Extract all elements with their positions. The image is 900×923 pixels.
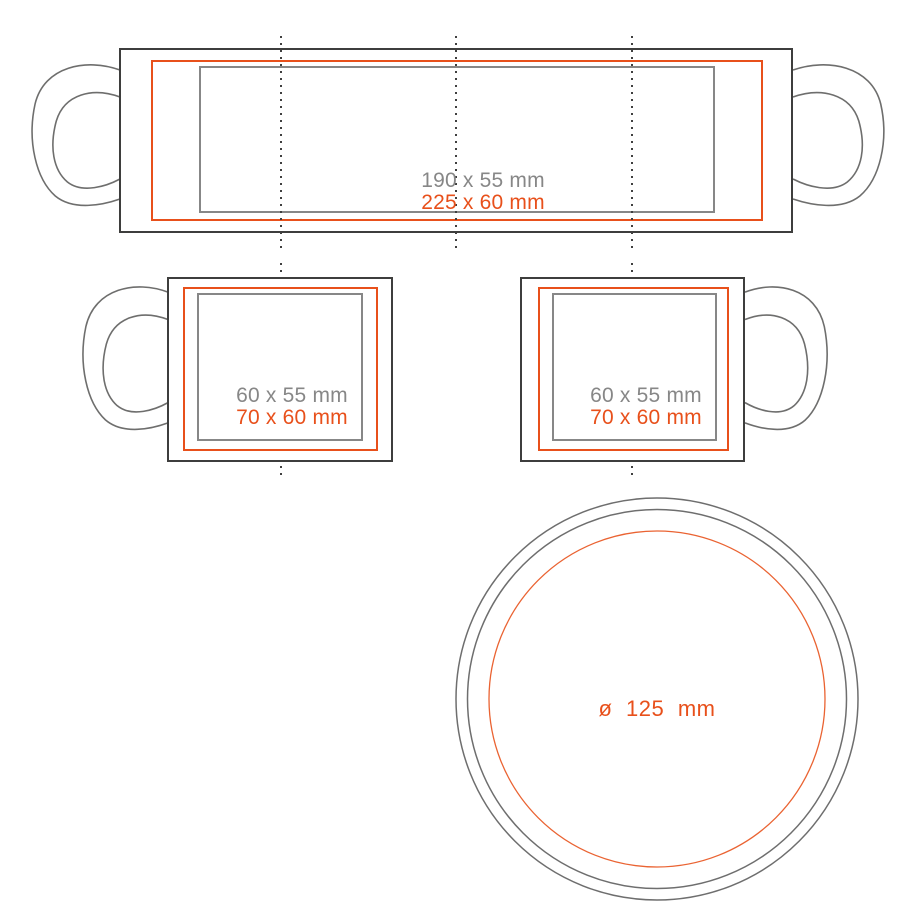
left-mug-standard-area-label: 60 x 55 mm	[182, 385, 402, 407]
wrap-standard-area-label: 190 x 55 mm	[373, 170, 593, 192]
left-mug-dimension-labels: 60 x 55 mm 70 x 60 mm	[182, 385, 402, 429]
guideline-center	[455, 36, 457, 248]
wrap-right-handle	[793, 57, 887, 207]
wrap-left-handle	[29, 57, 120, 207]
mug-print-area-diagram: 190 x 55 mm 225 x 60 mm 60 x 55 mm 70 x …	[0, 0, 900, 923]
guideline-left-top	[280, 36, 282, 250]
right-mug-handle	[745, 279, 830, 431]
right-mug-standard-area-label: 60 x 55 mm	[536, 385, 756, 407]
right-mug-dimension-labels: 60 x 55 mm 70 x 60 mm	[536, 385, 756, 429]
left-mug-handle	[80, 279, 168, 431]
left-mug-max-area-label: 70 x 60 mm	[182, 407, 402, 429]
wrap-max-area-label: 225 x 60 mm	[373, 192, 593, 214]
bottom-diameter-label: ø 125 mm	[547, 696, 767, 722]
guideline-right-top	[631, 36, 633, 250]
right-mug-max-area-label: 70 x 60 mm	[536, 407, 756, 429]
wrap-dimension-labels: 190 x 55 mm 225 x 60 mm	[373, 170, 593, 214]
